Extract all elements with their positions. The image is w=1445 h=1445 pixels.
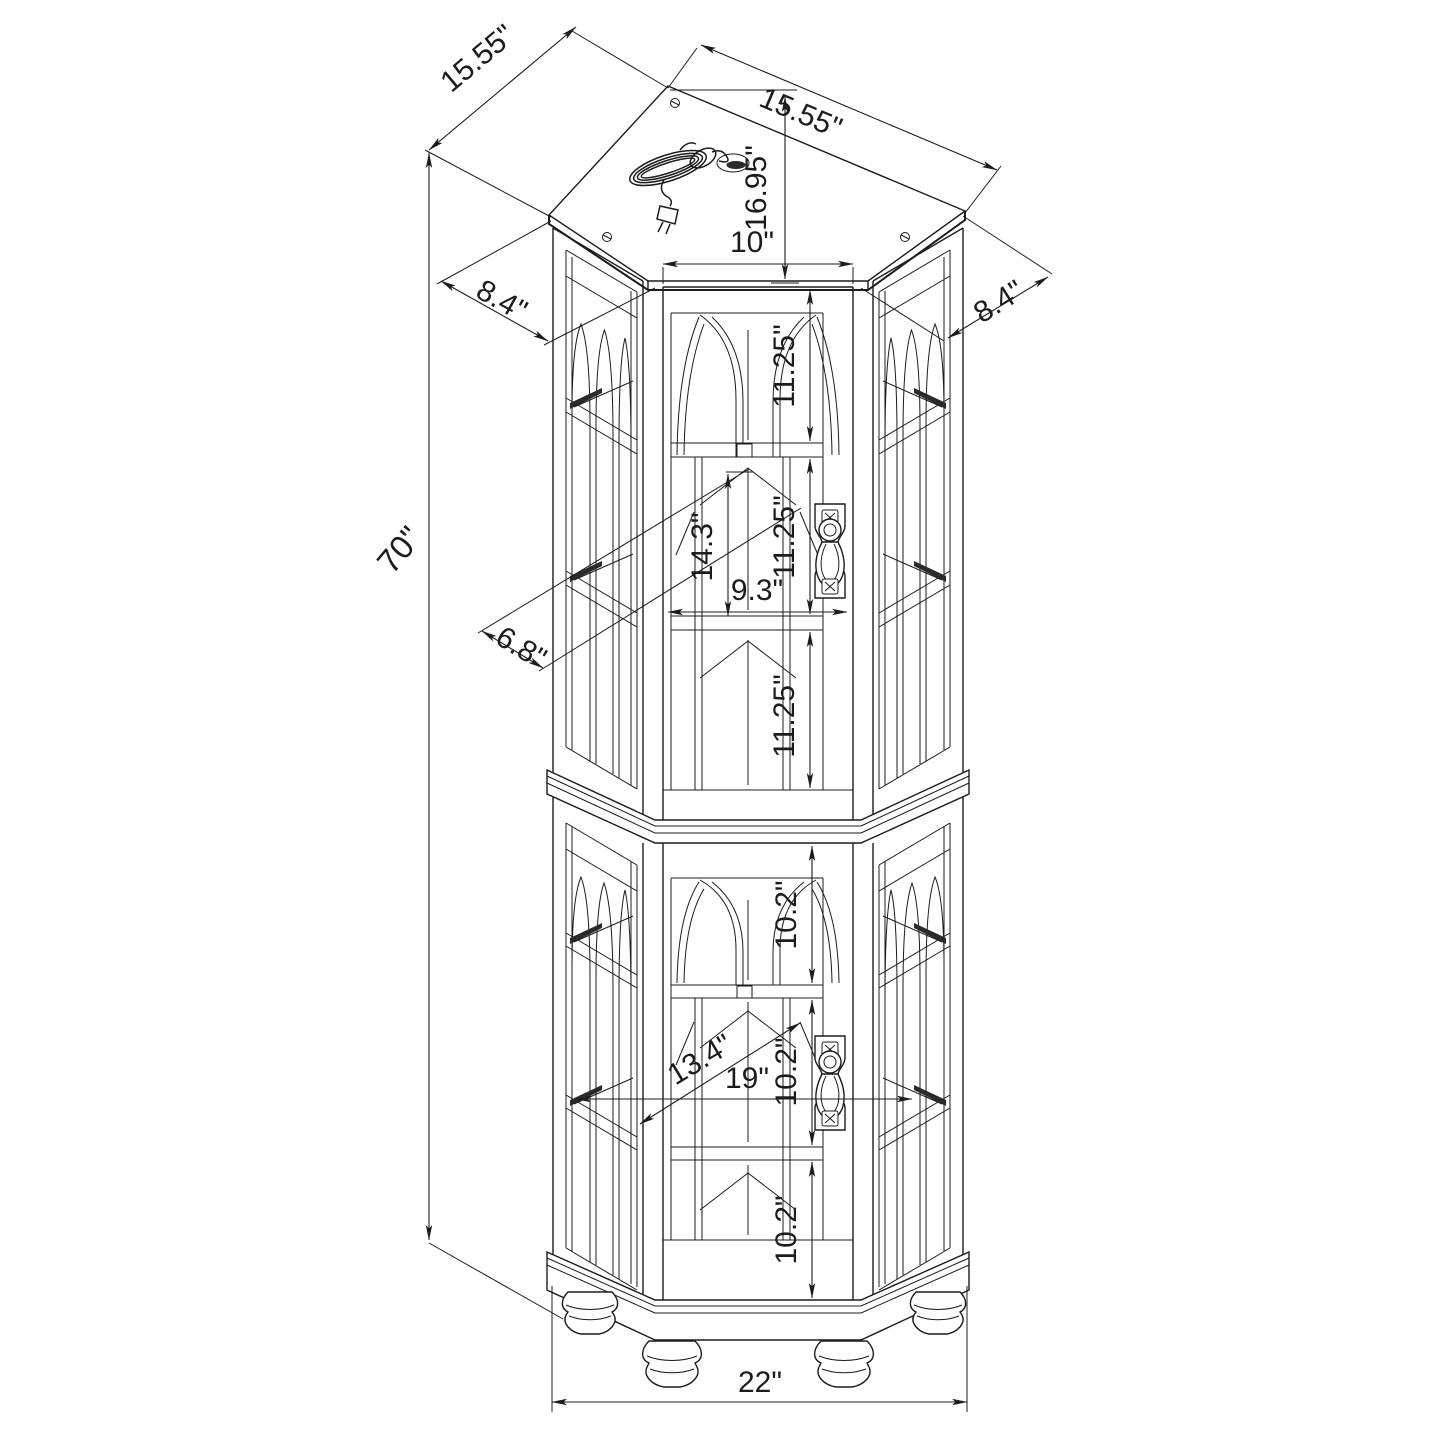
dim-upper-opening-height-label: 14.3"	[686, 512, 719, 581]
dim-side-panel-left-label: 8.4"	[471, 274, 533, 328]
dimension-upper-bays: 11.25" 11.25" 11.25"	[768, 290, 810, 788]
upper-right-side-window	[879, 250, 950, 789]
upper-door-handle	[815, 504, 845, 598]
dim-overall-height-label: 70"	[369, 519, 428, 580]
dim-base-width-label: 22"	[738, 1366, 782, 1399]
foot-front-left	[643, 1341, 702, 1387]
dim-door-top-width-label: 10"	[730, 226, 774, 259]
dim-upper-inner-width-label: 9.3"	[731, 574, 783, 607]
drawing-stage: 70" 15.55" 15.55" 16.95" 10"	[0, 0, 1445, 1445]
dim-top-edge-left-label: 15.55"	[434, 19, 521, 99]
lower-door-handle	[815, 1036, 845, 1130]
upper-left-side-window	[566, 250, 637, 789]
dimension-overall-height: 70"	[369, 153, 563, 1319]
lower-right-side-window	[879, 823, 950, 1290]
dim-lower-inner-width-label: 19"	[725, 1062, 769, 1095]
dimension-lower-bays: 10.2" 10.2" 10.2"	[770, 846, 812, 1298]
foot-front-right	[815, 1341, 874, 1387]
cabinet-dimension-drawing: 70" 15.55" 15.55" 16.95" 10"	[0, 0, 1445, 1445]
dim-side-panel-right-label: 8.4"	[968, 274, 1030, 330]
dim-upper-bay-3-label: 11.25"	[768, 674, 801, 758]
cabinet-body	[553, 228, 963, 1330]
dim-lower-bay-1-label: 10.2"	[770, 880, 803, 949]
dim-upper-bay-2-label: 11.25"	[768, 495, 801, 579]
dim-lower-bay-3-label: 10.2"	[770, 1195, 803, 1264]
foot-outer-right	[910, 1292, 965, 1334]
dim-lower-bay-2-label: 10.2"	[770, 1037, 803, 1106]
foot-outer-left	[562, 1292, 617, 1334]
dim-top-depth-label: 16.95"	[740, 145, 773, 231]
mid-molding	[547, 770, 969, 843]
dim-upper-bay-1-label: 11.25"	[768, 324, 801, 408]
lower-left-side-window	[566, 823, 637, 1290]
